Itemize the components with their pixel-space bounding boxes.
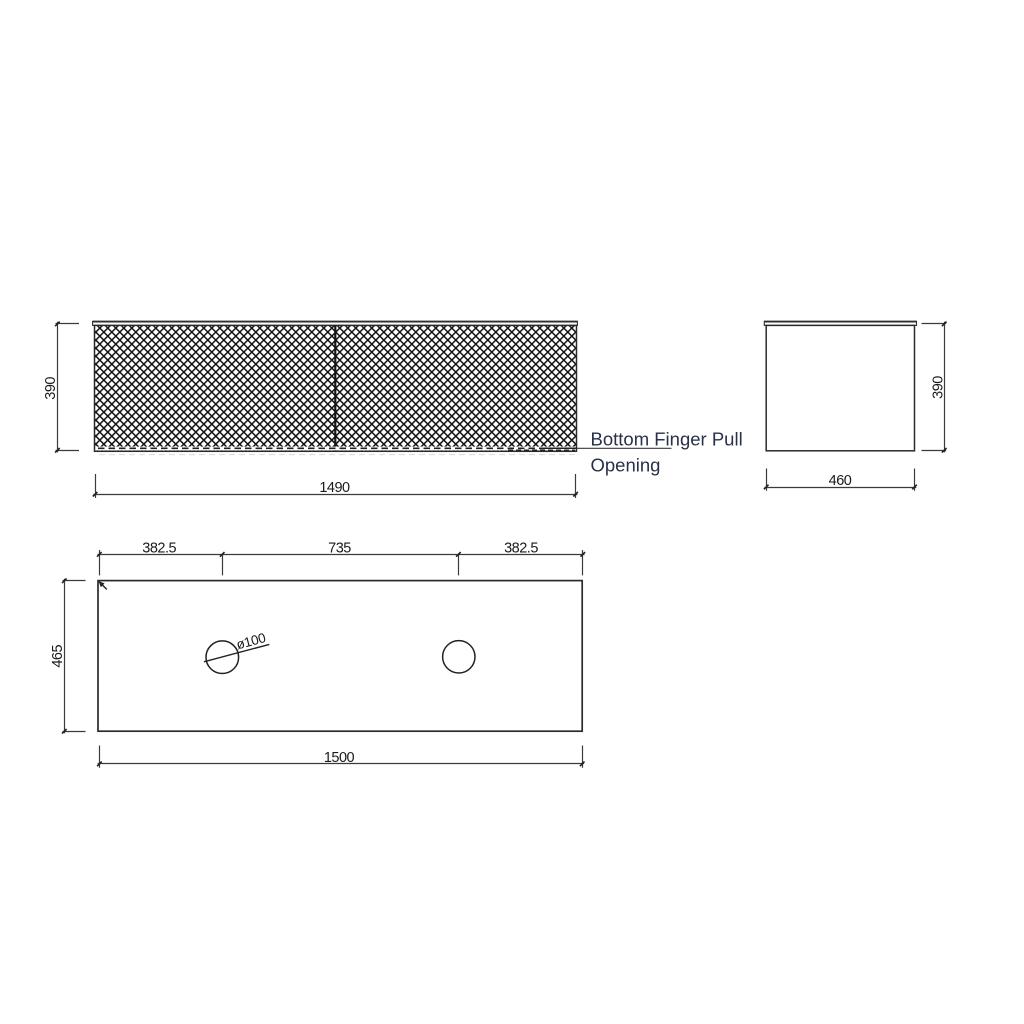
svg-text:390: 390 bbox=[43, 377, 59, 400]
svg-text:465: 465 bbox=[50, 645, 66, 668]
svg-text:460: 460 bbox=[829, 473, 852, 489]
svg-text:Bottom Finger Pull: Bottom Finger Pull bbox=[591, 428, 743, 449]
svg-text:1500: 1500 bbox=[324, 750, 355, 766]
svg-text:1490: 1490 bbox=[319, 480, 350, 496]
svg-text:382.5: 382.5 bbox=[504, 541, 538, 557]
svg-text:382.5: 382.5 bbox=[142, 541, 176, 557]
svg-text:Opening: Opening bbox=[591, 454, 661, 475]
svg-text:390: 390 bbox=[930, 376, 946, 399]
svg-text:735: 735 bbox=[328, 541, 351, 557]
